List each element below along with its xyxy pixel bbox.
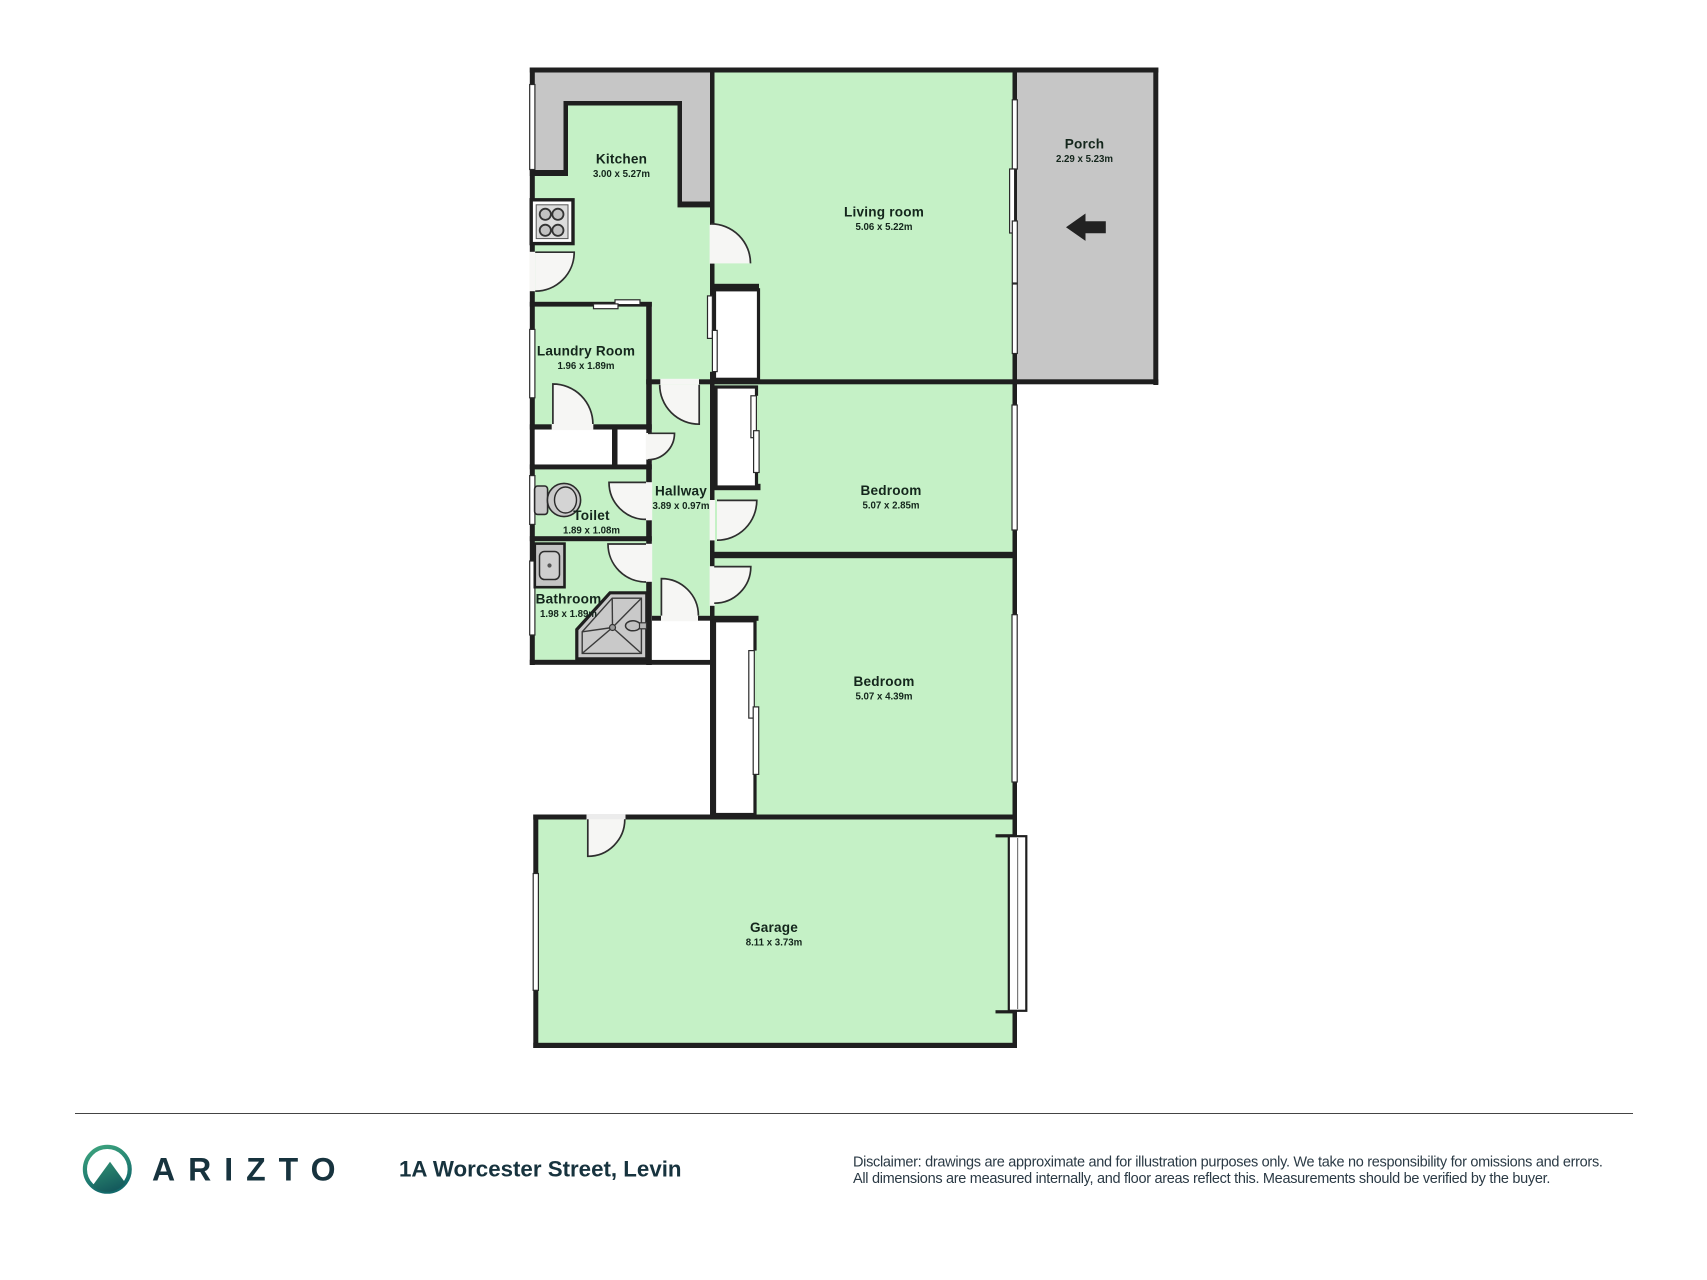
svg-text:1A Worcester Street, Levin: 1A Worcester Street, Levin — [399, 1157, 682, 1182]
svg-text:Bedroom: Bedroom — [860, 483, 921, 498]
svg-text:1.89 x 1.08m: 1.89 x 1.08m — [563, 526, 620, 537]
svg-text:3.89 x 0.97m: 3.89 x 0.97m — [652, 501, 709, 512]
svg-text:Porch: Porch — [1065, 136, 1105, 151]
svg-text:All dimensions are measured in: All dimensions are measured internally, … — [853, 1171, 1550, 1187]
svg-text:ARIZTO: ARIZTO — [152, 1152, 349, 1188]
svg-text:Living room: Living room — [844, 204, 924, 219]
svg-text:5.07 x 2.85m: 5.07 x 2.85m — [862, 501, 919, 512]
svg-text:5.06 x 5.22m: 5.06 x 5.22m — [855, 222, 912, 233]
svg-text:5.07 x 4.39m: 5.07 x 4.39m — [855, 692, 912, 703]
svg-text:2.29 x 5.23m: 2.29 x 5.23m — [1056, 154, 1113, 165]
svg-text:Toilet: Toilet — [573, 508, 610, 523]
svg-text:3.00 x 5.27m: 3.00 x 5.27m — [593, 169, 650, 180]
svg-text:Bedroom: Bedroom — [853, 674, 914, 689]
svg-text:Hallway: Hallway — [655, 483, 707, 498]
svg-text:Garage: Garage — [750, 920, 798, 935]
svg-text:Laundry Room: Laundry Room — [537, 343, 635, 358]
svg-text:Bathroom: Bathroom — [536, 591, 602, 606]
svg-text:1.96 x 1.89m: 1.96 x 1.89m — [557, 361, 614, 372]
svg-text:Disclaimer: drawings are appro: Disclaimer: drawings are approximate and… — [853, 1154, 1603, 1170]
svg-text:Kitchen: Kitchen — [596, 151, 647, 166]
svg-text:8.11 x 3.73m: 8.11 x 3.73m — [746, 938, 803, 949]
svg-text:1.98 x 1.89m: 1.98 x 1.89m — [540, 609, 597, 620]
